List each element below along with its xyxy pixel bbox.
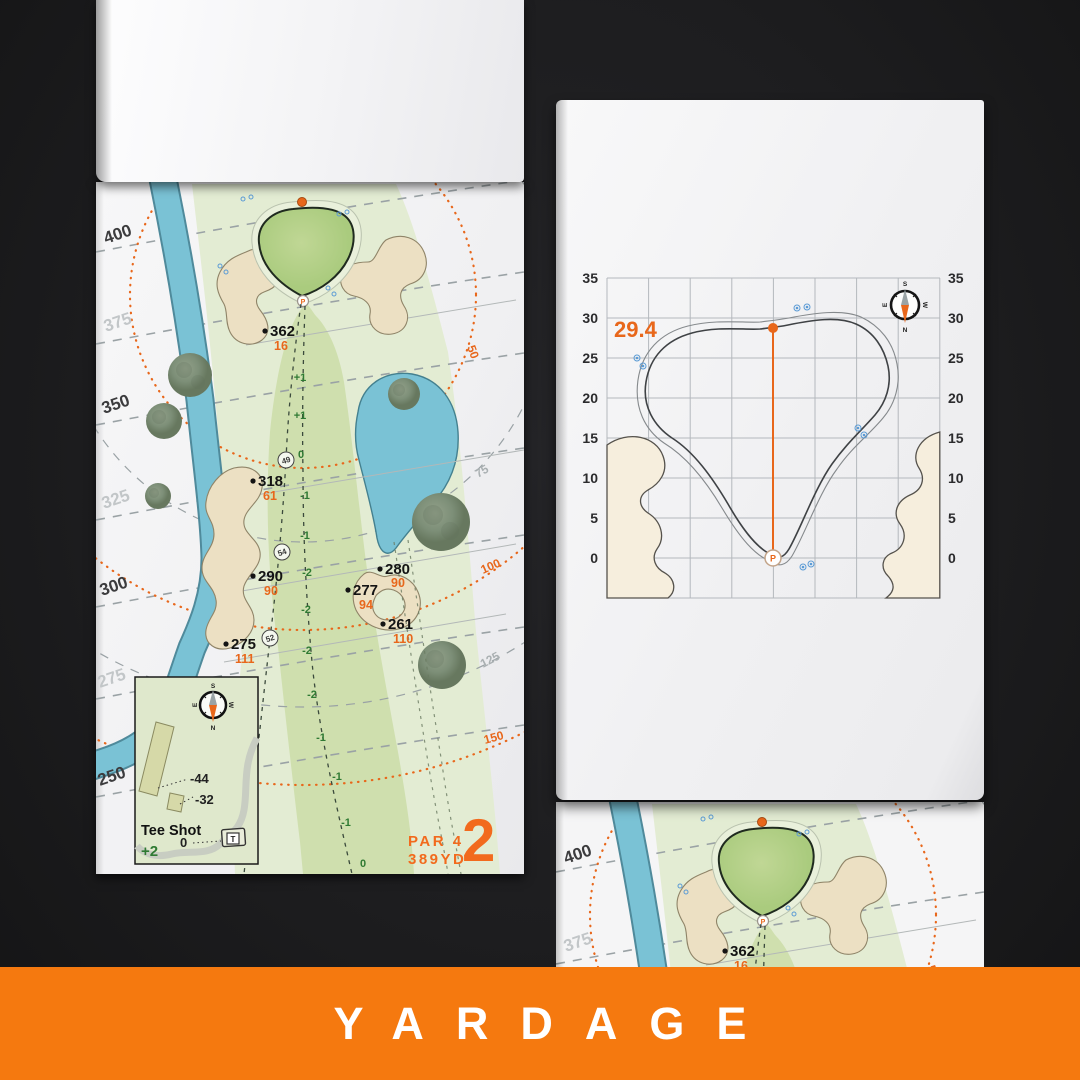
hole-map-page <box>96 182 524 874</box>
svg-text:10: 10 <box>948 470 964 486</box>
flipped-blank-page <box>96 0 524 182</box>
svg-text:E: E <box>882 302 889 307</box>
svg-text:20: 20 <box>948 390 964 406</box>
svg-text:0: 0 <box>590 550 598 566</box>
front-pin-marker: P <box>765 550 781 566</box>
scene: P <box>0 0 1080 1080</box>
compass-rose-icon: S N W E <box>882 281 928 334</box>
green-detail-page: P 29.4 35 30 25 20 15 10 5 0 35 30 <box>556 100 984 800</box>
y-axis-left: 35 30 25 20 15 10 5 0 <box>582 270 598 566</box>
depth-label: 29.4 <box>614 317 658 342</box>
svg-text:25: 25 <box>948 350 964 366</box>
yardage-banner: YARDAGE <box>0 967 1080 1080</box>
svg-text:N: N <box>903 327 908 334</box>
hole-map-preview-svg <box>556 802 984 967</box>
svg-text:0: 0 <box>948 550 956 566</box>
svg-text:15: 15 <box>582 430 598 446</box>
banner-label: YARDAGE <box>302 998 779 1050</box>
svg-text:P: P <box>770 554 776 564</box>
svg-text:35: 35 <box>948 270 964 286</box>
next-hole-map-page <box>556 802 984 967</box>
yardage-book-left-spread <box>96 0 524 880</box>
y-axis-right: 35 30 25 20 15 10 5 0 <box>948 270 964 566</box>
svg-text:30: 30 <box>948 310 964 326</box>
svg-text:S: S <box>903 281 908 288</box>
chart-bunker-left <box>607 437 674 598</box>
green-outline <box>637 312 898 564</box>
svg-text:15: 15 <box>948 430 964 446</box>
hole-map-svg <box>96 182 524 874</box>
green-chart-svg: P 29.4 35 30 25 20 15 10 5 0 35 30 <box>556 100 984 800</box>
svg-text:20: 20 <box>582 390 598 406</box>
svg-text:25: 25 <box>582 350 598 366</box>
svg-text:10: 10 <box>582 470 598 486</box>
svg-text:35: 35 <box>582 270 598 286</box>
svg-text:30: 30 <box>582 310 598 326</box>
svg-text:W: W <box>921 302 928 309</box>
svg-text:5: 5 <box>590 510 598 526</box>
yardage-book-right-spread: P 29.4 35 30 25 20 15 10 5 0 35 30 <box>556 100 984 967</box>
depth-dot <box>768 323 778 333</box>
svg-text:5: 5 <box>948 510 956 526</box>
chart-bunker-right <box>883 432 940 598</box>
